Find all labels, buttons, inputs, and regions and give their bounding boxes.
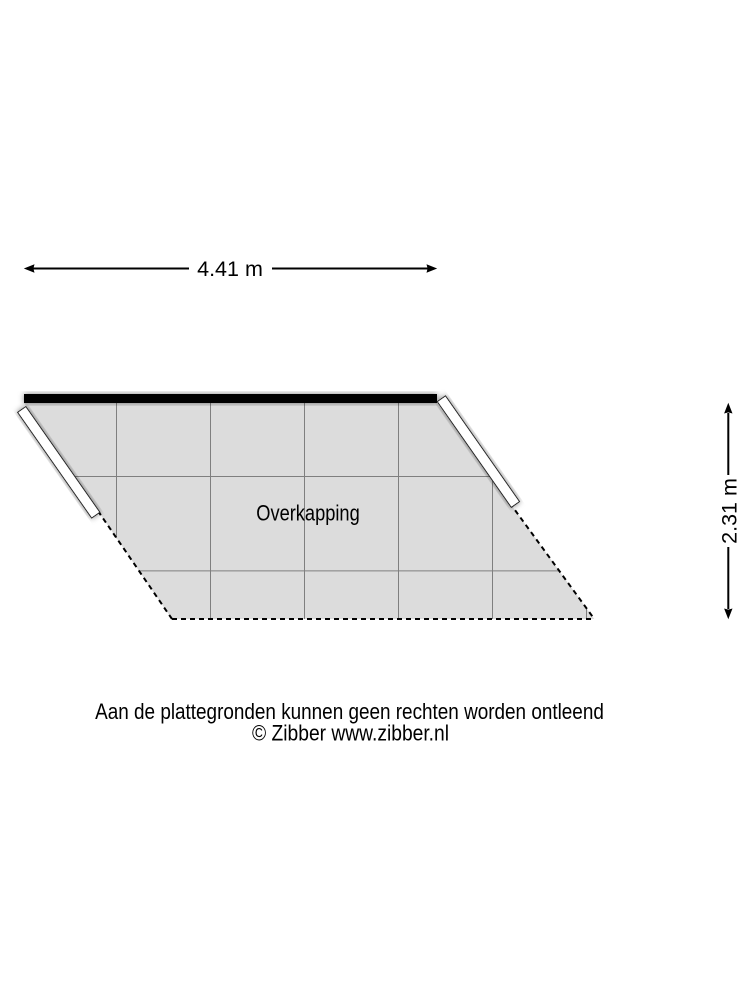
svg-text:Overkapping: Overkapping (256, 502, 359, 526)
svg-text:2.31 m: 2.31 m (717, 478, 741, 544)
svg-text:© Zibber www.zibber.nl: © Zibber www.zibber.nl (252, 721, 449, 745)
svg-text:4.41 m: 4.41 m (197, 257, 263, 281)
